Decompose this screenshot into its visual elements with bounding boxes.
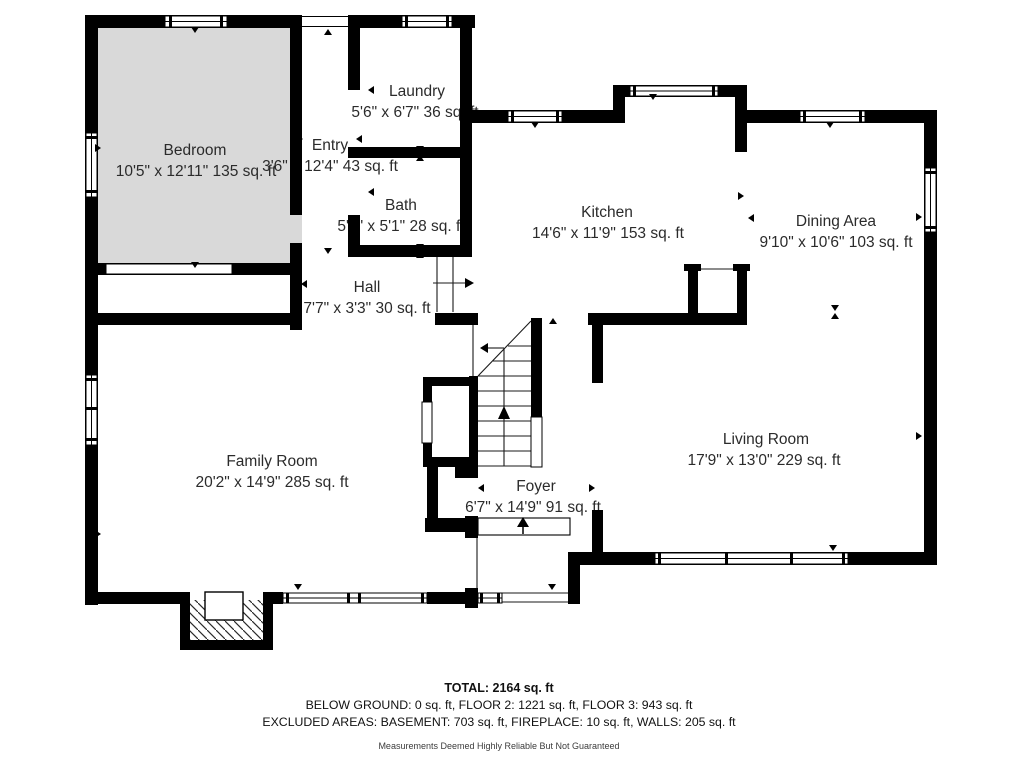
entry-door-opening [302, 15, 348, 28]
hall-stairs-arrow [465, 278, 474, 288]
stair-left-arrow [480, 343, 488, 353]
firebox [205, 592, 243, 620]
main-staircase [478, 321, 531, 466]
room-label-foyer: Foyer [516, 478, 556, 495]
summary-total: TOTAL: 2164 sq. ft [0, 679, 998, 697]
front-door-arrow [478, 517, 570, 535]
room-label-bedroom: Bedroom [164, 142, 227, 159]
room-label-family: Family Room [226, 453, 317, 470]
bedroom-top-window [165, 16, 227, 27]
fireplace-detail [190, 592, 263, 640]
bump-top-window [630, 86, 718, 96]
room-label-dining: Dining Area [796, 213, 877, 230]
summary-floors: BELOW GROUND: 0 sq. ft, FLOOR 2: 1221 sq… [0, 697, 998, 714]
stair-railing [531, 417, 542, 467]
laundry-top-window [402, 16, 452, 27]
room-dims-dining: 9'10" x 10'6" 103 sq. ft [759, 234, 913, 251]
room-dims-family: 20'2" x 14'9" 285 sq. ft [195, 474, 349, 491]
dining-top-window [800, 111, 865, 122]
hall-staircase [433, 257, 465, 312]
summary-disclaimer: Measurements Deemed Highly Reliable But … [0, 741, 998, 751]
room-label-hall: Hall [354, 279, 381, 296]
floor-plan-page: Bedroom 10'5" x 12'11" 135 sq. ft Entry … [0, 0, 1024, 768]
summary-excluded: EXCLUDED AREAS: BASEMENT: 703 sq. ft, FI… [0, 714, 998, 731]
room-label-entry: Entry [312, 137, 348, 154]
living-bottom-window [655, 553, 848, 564]
dining-right-window [925, 168, 936, 232]
room-label-living: Living Room [723, 431, 809, 448]
floor-plan: Bedroom 10'5" x 12'11" 135 sq. ft Entry … [0, 0, 1024, 768]
room-label-kitchen: Kitchen [581, 204, 633, 221]
summary-block: TOTAL: 2164 sq. ft BELOW GROUND: 0 sq. f… [0, 679, 998, 751]
chimney [684, 264, 750, 317]
kitchen-top-window [508, 111, 562, 122]
room-dims-bedroom: 10'5" x 12'11" 135 sq. ft [116, 163, 277, 180]
bedroom-closet-opening [106, 264, 232, 274]
room-label-bath: Bath [385, 197, 417, 214]
room-dims-living: 17'9" x 13'0" 229 sq. ft [687, 452, 841, 469]
family-left-window [86, 375, 97, 445]
bedroom-door-opening [290, 215, 302, 243]
room-dims-hall: 7'7" x 3'3" 30 sq. ft [303, 300, 431, 317]
stair-up-arrow [498, 406, 510, 419]
family-bottom-window [283, 593, 427, 603]
room-label-laundry: Laundry [389, 83, 445, 100]
bedroom-left-window [86, 133, 97, 197]
room-dims-kitchen: 14'6" x 11'9" 153 sq. ft [532, 225, 685, 242]
room-dims-foyer: 6'7" x 14'9" 91 sq. ft [465, 499, 602, 516]
stair-closet-opening [422, 402, 432, 443]
foyer-bottom-window [478, 593, 502, 603]
room-dims-entry: 3'6" x 12'4" 43 sq. ft [262, 158, 399, 175]
